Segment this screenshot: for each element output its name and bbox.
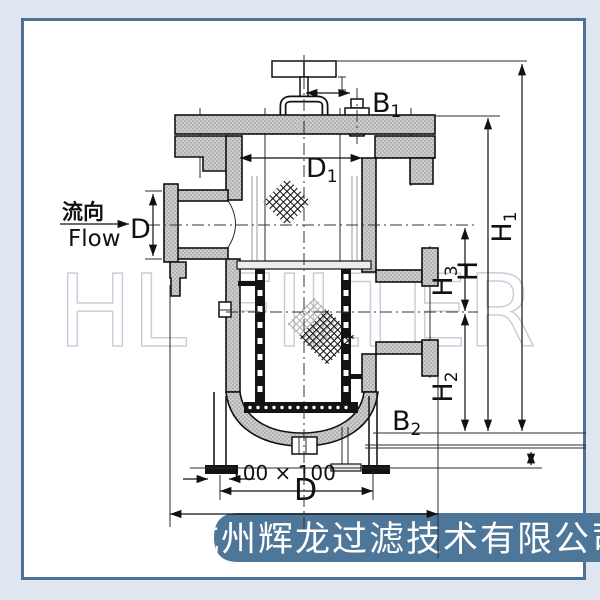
shell-wall-left-lower [226,259,240,392]
basket-support-right [351,374,362,379]
inlet-wall-bottom [176,248,228,259]
shell-wall-right-upper [362,158,376,272]
b1-bolt-head [351,99,363,108]
foot-pad-right [362,465,390,474]
flow-label-en: Flow [68,226,121,252]
shell-wall-right-lower [362,354,376,392]
company-name: 杭州辉龙过滤技术有限公司 [184,520,600,559]
inlet-wall-top [176,190,228,201]
label-d-inlet: D [130,214,151,245]
inlet-flange [164,184,178,262]
flange-gusset-right [410,158,433,184]
label-d-bottom: D [294,473,317,508]
flow-label-cn: 流向 [62,200,104,224]
basket-wall-left [255,269,265,404]
outlet-wall-bottom [376,342,422,354]
outlet-flange-lower [422,340,438,376]
outlet-wall-top [376,270,422,282]
company-banner: 杭州辉龙过滤技术有限公司 [184,513,600,562]
basket-support-left [238,281,255,286]
basket-strainer-drawing-page: HL FILTER [0,0,600,600]
body-flange-right [375,136,435,158]
strainer-diagram: HL FILTER [0,0,600,600]
basket-bottom-plate [244,402,358,413]
label-foot-pad: 100 × 100 [230,461,336,485]
